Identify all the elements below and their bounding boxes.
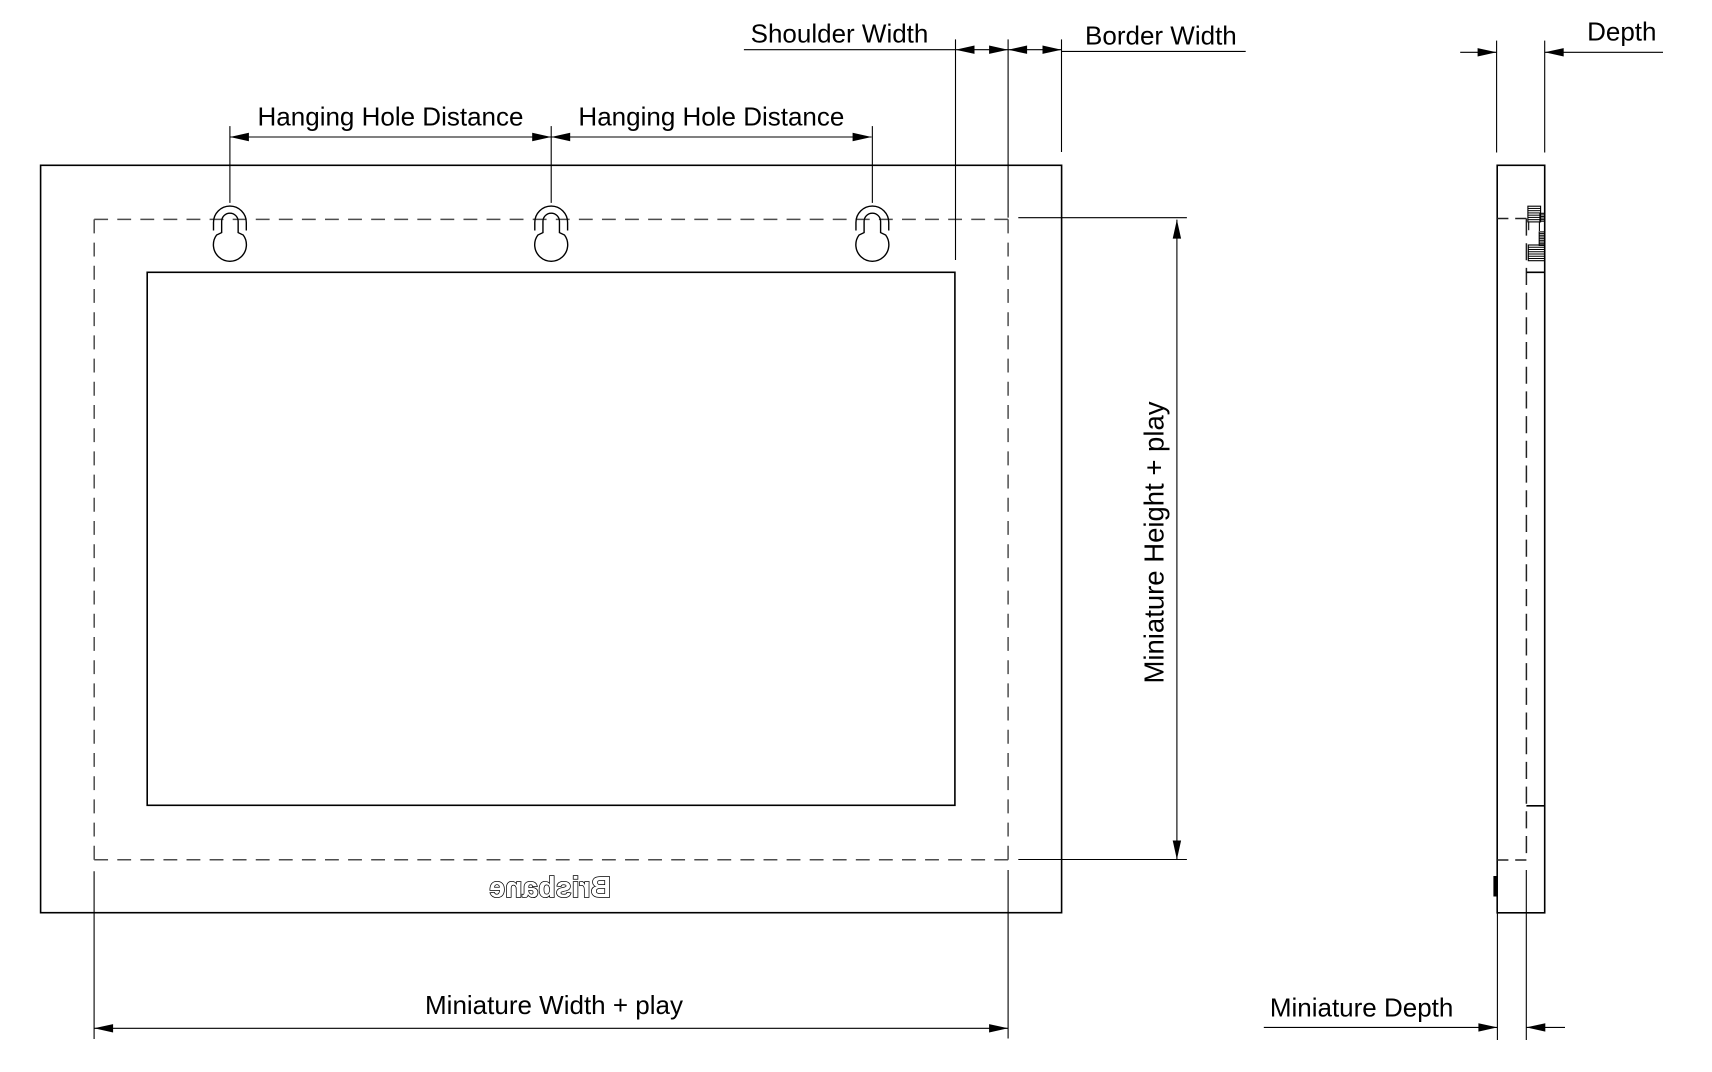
svg-text:Miniature Height + play: Miniature Height + play — [1139, 401, 1170, 683]
svg-text:Hanging Hole Distance: Hanging Hole Distance — [578, 101, 844, 131]
svg-text:Shoulder Width: Shoulder Width — [751, 19, 929, 49]
svg-text:Miniature Depth: Miniature Depth — [1270, 993, 1454, 1023]
svg-text:Depth: Depth — [1587, 17, 1656, 47]
svg-text:Miniature Width + play: Miniature Width + play — [425, 990, 683, 1020]
svg-text:Hanging Hole Distance: Hanging Hole Distance — [258, 101, 524, 131]
svg-text:Border Width: Border Width — [1085, 21, 1237, 51]
svg-text:Brisbane: Brisbane — [489, 872, 611, 904]
